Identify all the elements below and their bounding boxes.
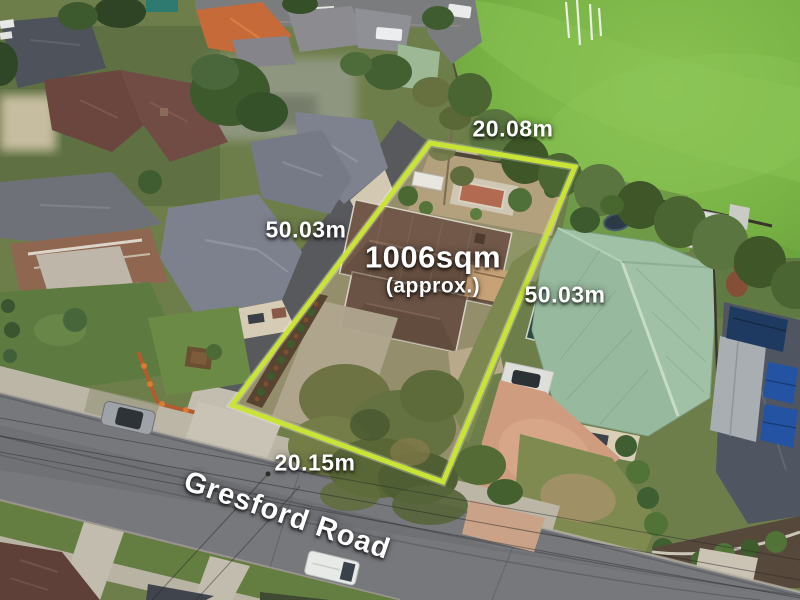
blurred-house [0,95,56,151]
photo-scene [0,0,800,600]
teal-roof-shed [146,0,178,12]
area-label: 1006sqm [365,242,501,273]
aerial-photo: 20.08m 50.03m 1006sqm (approx.) 50.03m 2… [0,0,800,600]
area-approx-label: (approx.) [386,276,480,297]
dimension-label-right: 50.03m [524,284,605,307]
dimension-label-bottom: 20.15m [274,452,355,475]
dimension-label-top: 20.08m [472,118,553,141]
van-white-top [376,27,403,41]
roof-panels-grey [710,336,766,442]
dimension-label-left: 50.03m [265,219,346,242]
